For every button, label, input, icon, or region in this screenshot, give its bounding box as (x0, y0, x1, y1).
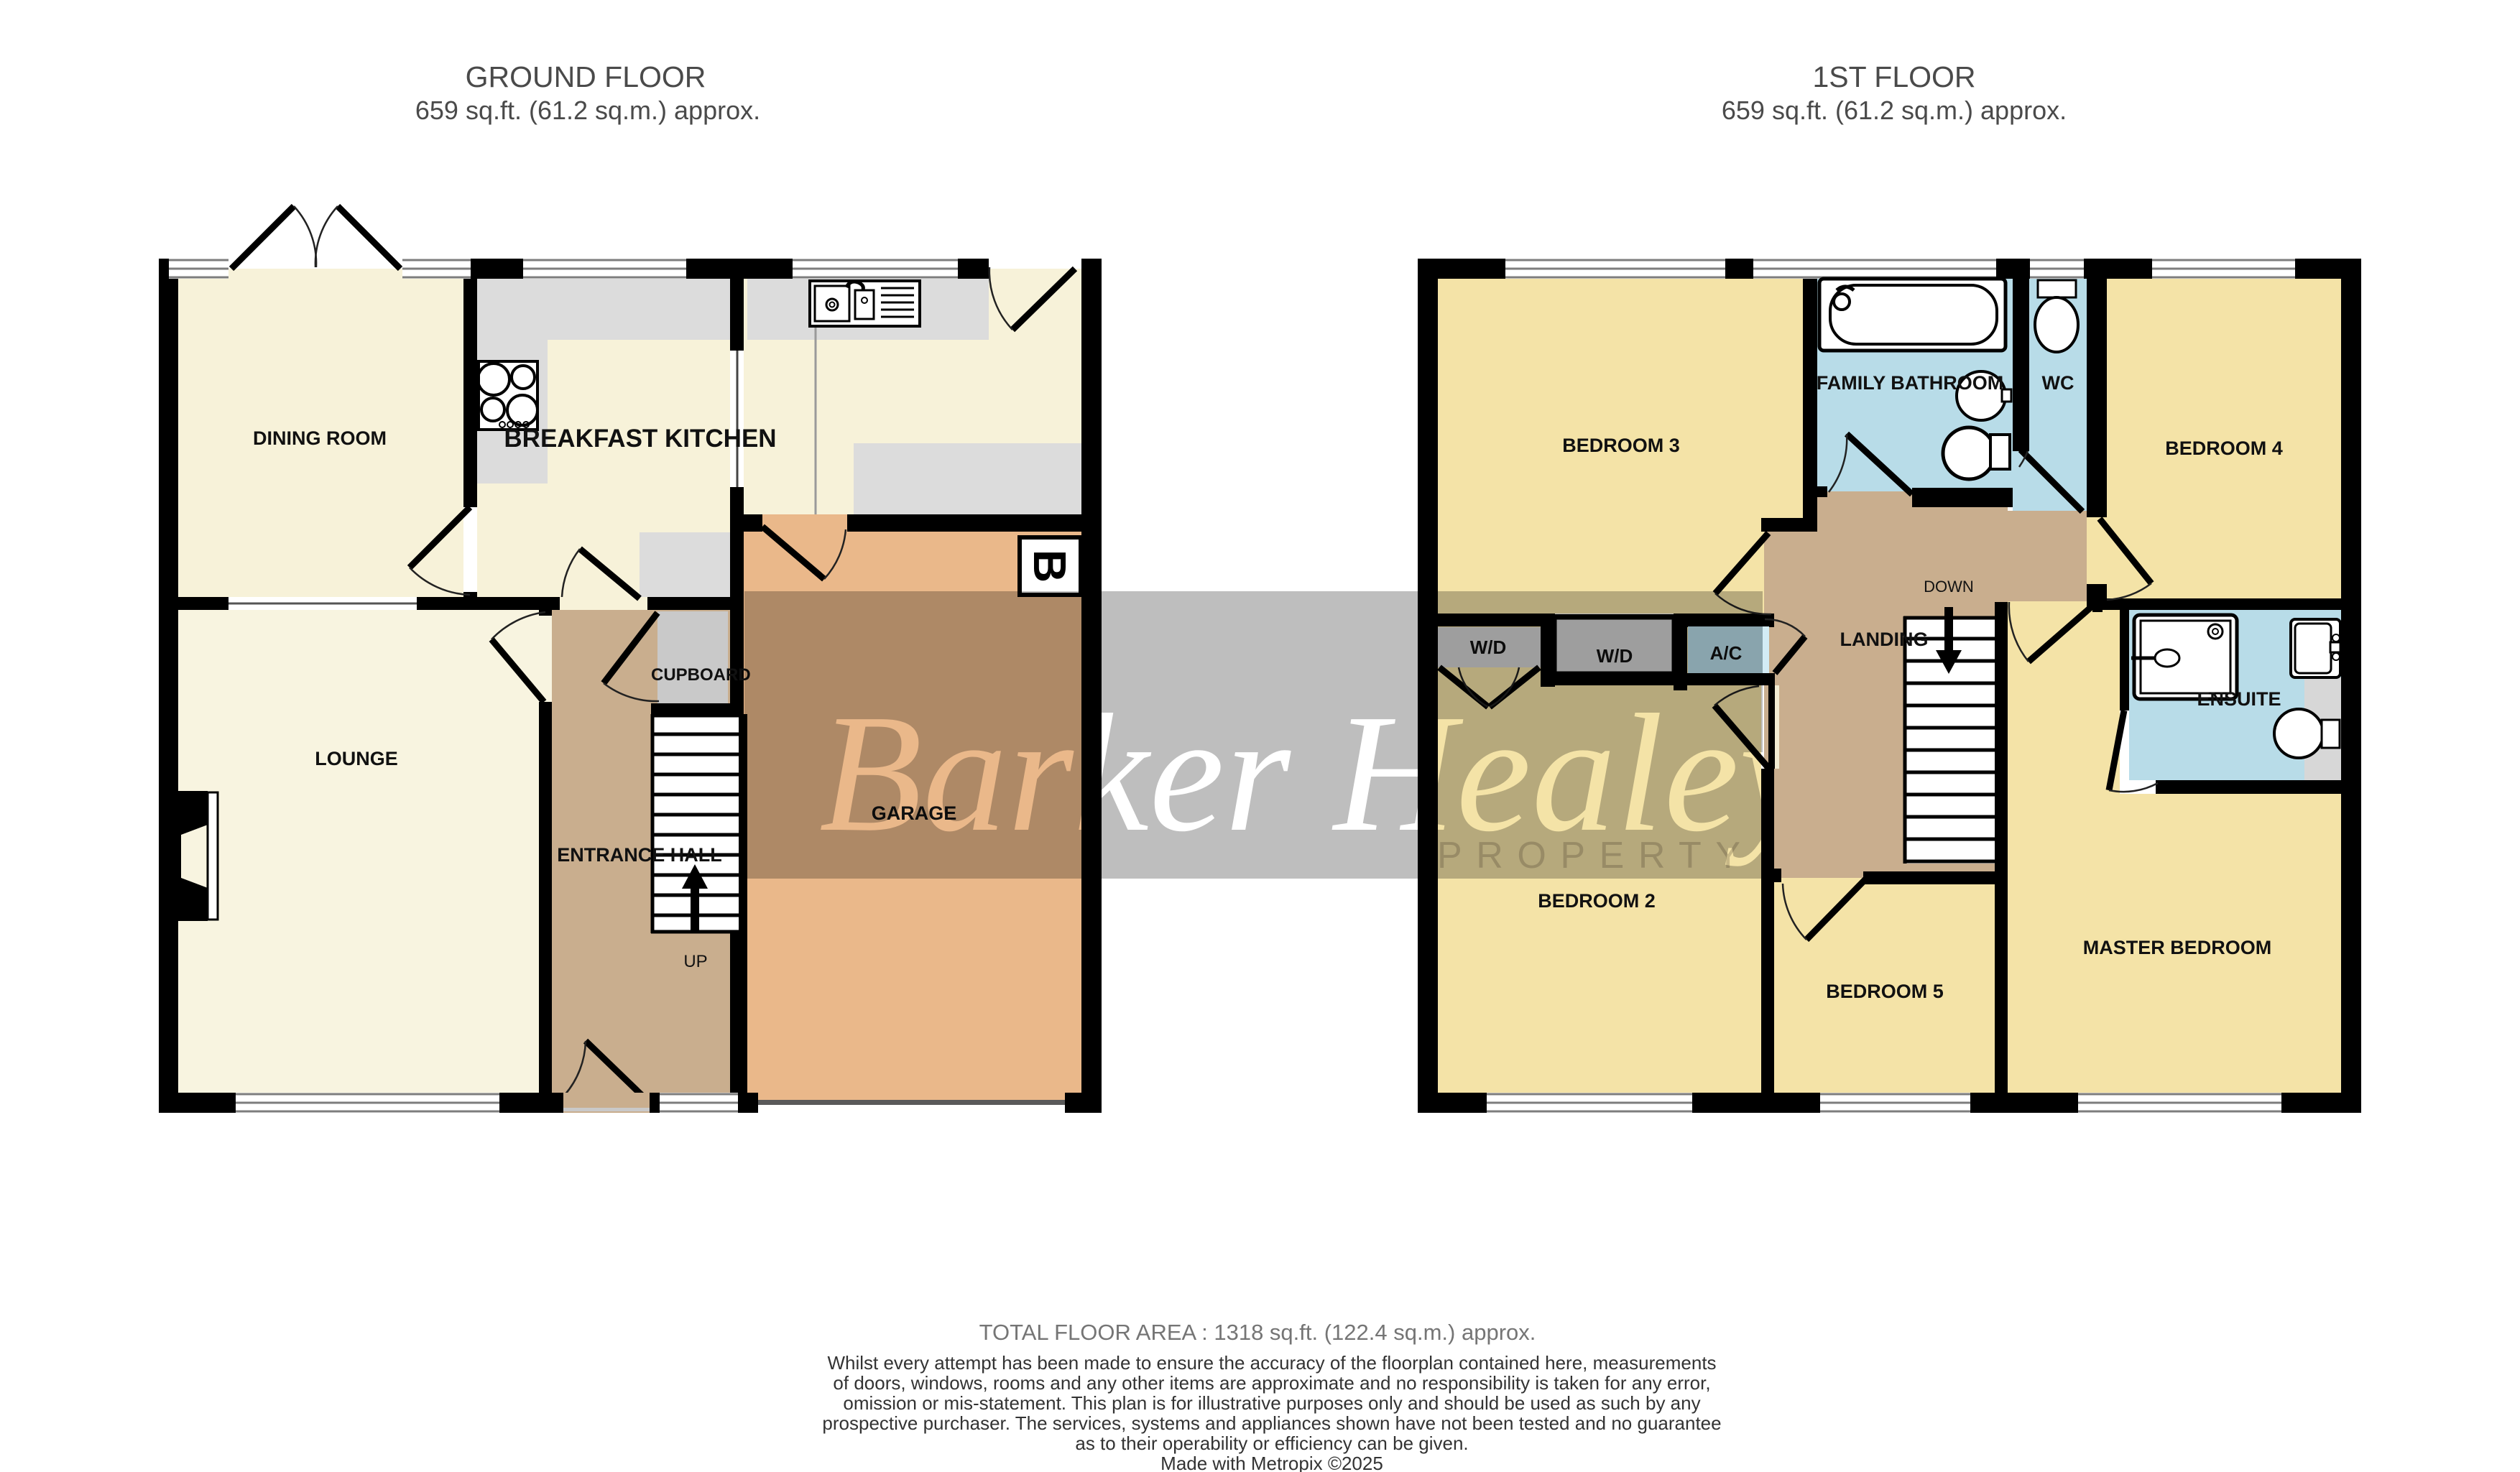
svg-text:UP: UP (683, 952, 707, 971)
svg-text:DINING ROOM: DINING ROOM (253, 427, 387, 449)
svg-text:BEDROOM 4: BEDROOM 4 (2165, 438, 2283, 459)
svg-text:BEDROOM 5: BEDROOM 5 (1826, 981, 1944, 1002)
svg-text:Whilst every attempt has been: Whilst every attempt has been made to en… (827, 1352, 1716, 1374)
svg-text:of doors, windows, rooms and a: of doors, windows, rooms and any other i… (833, 1372, 1710, 1394)
svg-text:Made with Metropix ©2025: Made with Metropix ©2025 (1160, 1453, 1383, 1472)
svg-text:ENSUITE: ENSUITE (2197, 688, 2281, 710)
svg-text:659 sq.ft. (61.2 sq.m.) approx: 659 sq.ft. (61.2 sq.m.) approx. (415, 96, 760, 125)
svg-text:FAMILY BATHROOM: FAMILY BATHROOM (1817, 372, 2004, 394)
svg-text:BEDROOM 3: BEDROOM 3 (1562, 435, 1680, 456)
svg-text:WC: WC (2042, 372, 2074, 394)
svg-text:LOUNGE: LOUNGE (315, 748, 398, 769)
svg-text:DOWN: DOWN (1924, 578, 1974, 596)
svg-text:659 sq.ft. (61.2 sq.m.) approx: 659 sq.ft. (61.2 sq.m.) approx. (1722, 96, 2067, 125)
svg-text:1ST FLOOR: 1ST FLOOR (1812, 60, 1975, 93)
svg-text:BEDROOM 2: BEDROOM 2 (1538, 890, 1656, 912)
svg-text:BREAKFAST KITCHEN: BREAKFAST KITCHEN (504, 425, 776, 453)
svg-text:ENTRANCE HALL: ENTRANCE HALL (557, 844, 722, 866)
svg-text:PROPERTY: PROPERTY (1437, 835, 1753, 876)
svg-text:GROUND FLOOR: GROUND FLOOR (466, 60, 706, 93)
svg-text:as to their operability or eff: as to their operability or efficiency ca… (1075, 1432, 1468, 1454)
svg-text:CUPBOARD: CUPBOARD (651, 665, 751, 685)
svg-text:LANDING: LANDING (1840, 629, 1929, 650)
svg-text:omission or mis-statement. Thi: omission or mis-statement. This plan is … (843, 1392, 1700, 1414)
svg-text:B: B (1024, 550, 1076, 583)
svg-text:MASTER BEDROOM: MASTER BEDROOM (2083, 937, 2272, 958)
svg-text:TOTAL FLOOR AREA : 1318 sq.ft.: TOTAL FLOOR AREA : 1318 sq.ft. (122.4 sq… (979, 1320, 1536, 1345)
svg-text:prospective purchaser. The ser: prospective purchaser. The services, sys… (822, 1412, 1721, 1434)
